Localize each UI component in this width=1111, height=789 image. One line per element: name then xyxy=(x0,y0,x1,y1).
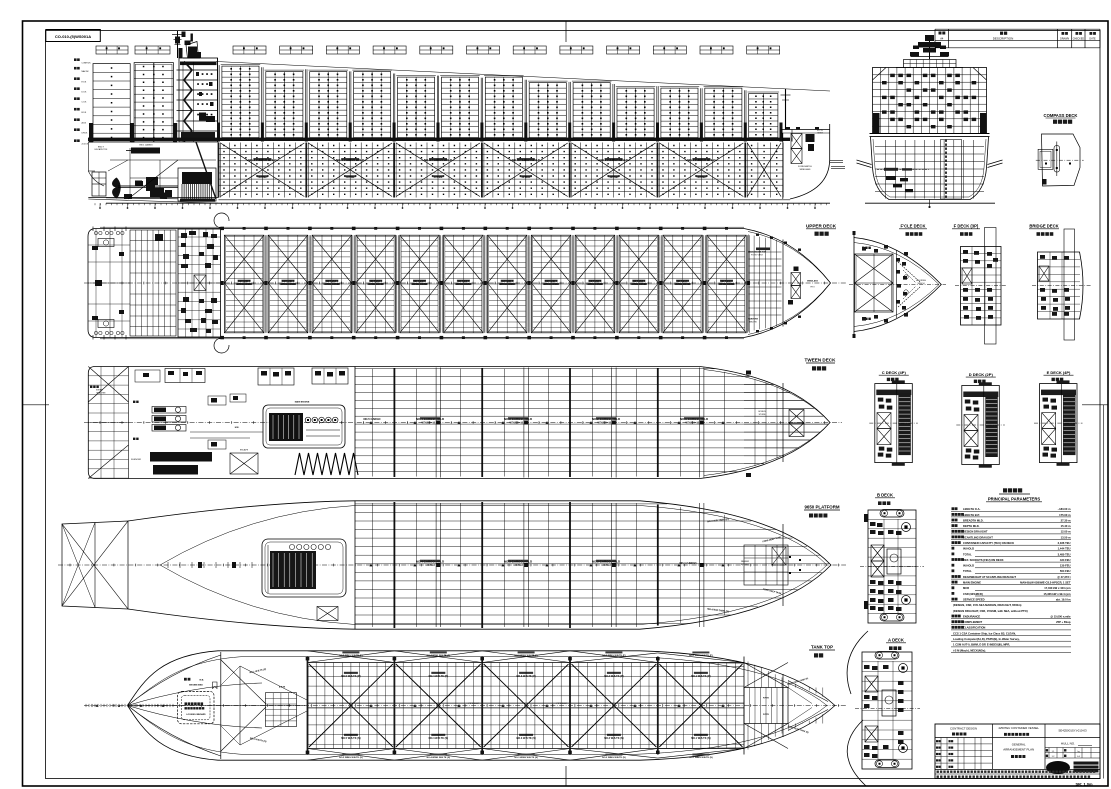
svg-text:DESIGN DRAUGHT: DESIGN DRAUGHT xyxy=(963,530,988,534)
svg-text:LENGTH B.P.: LENGTH B.P. xyxy=(963,513,980,517)
svg-text:NO.5 WING W.B.TK (S): NO.5 WING W.B.TK (S) xyxy=(339,757,363,759)
svg-text:SERVICE SPEED: SERVICE SPEED xyxy=(963,598,985,602)
svg-text:564 FEU: 564 FEU xyxy=(1060,569,1071,573)
svg-text:BRIDGE DECK: BRIDGE DECK xyxy=(1029,223,1058,228)
svg-text:HATCH COVER: HATCH COVER xyxy=(499,283,516,286)
svg-text:MAIN ENGINE: MAIN ENGINE xyxy=(963,581,981,585)
svg-text:40FT/20FT: 40FT/20FT xyxy=(720,280,733,283)
svg-text:FR 8: FR 8 xyxy=(811,287,815,289)
svg-text:ESCAPE: ESCAPE xyxy=(240,449,249,452)
svg-text:25P + 6Sup: 25P + 6Sup xyxy=(1056,620,1071,624)
svg-text:40T/M2 H=10.4M: 40T/M2 H=10.4M xyxy=(421,422,439,424)
svg-text:EMC'Y: EMC'Y xyxy=(98,147,105,149)
svg-text:BELOW: BELOW xyxy=(749,322,756,324)
svg-text:REF. SOCKETS (FEU) ON DECK: REF. SOCKETS (FEU) ON DECK xyxy=(963,558,1004,562)
svg-text:CSR (90%MCR): CSR (90%MCR) xyxy=(963,592,983,596)
svg-text:TOTAL: TOTAL xyxy=(963,569,972,573)
svg-text:F DECK (3P): F DECK (3P) xyxy=(954,223,979,228)
svg-text:A DK: A DK xyxy=(82,122,87,125)
svg-text:DECK HOUSE TOP: DECK HOUSE TOP xyxy=(748,252,767,254)
svg-text:NO.1 CARGO HOLD: NO.1 CARGO HOLD xyxy=(680,417,709,421)
svg-text:40T/M2 H=10.4M: 40T/M2 H=10.4M xyxy=(597,422,615,424)
svg-text:40FT/20FT: 40FT/20FT xyxy=(501,280,514,283)
svg-text:NO.3 CARGO HOLD: NO.3 CARGO HOLD xyxy=(512,158,541,162)
svg-text:1,444 TEU: 1,444 TEU xyxy=(1058,547,1071,551)
svg-text:HATCH COVER: HATCH COVER xyxy=(367,283,384,286)
svg-text:WINCH: WINCH xyxy=(918,283,925,285)
svg-text:438 TEU: 438 TEU xyxy=(425,565,434,567)
svg-text:40FT/20FT: 40FT/20FT xyxy=(238,280,251,283)
svg-text:FO TK VENT: FO TK VENT xyxy=(751,255,764,257)
svg-text:UP.DK: UP.DK xyxy=(82,133,89,135)
svg-text:NO.5 WING W.B.TK (P): NO.5 WING W.B.TK (P) xyxy=(339,655,363,657)
svg-text:HATCH COVER: HATCH COVER xyxy=(411,283,428,286)
svg-text:CO-010-(5)WS001A: CO-010-(5)WS001A xyxy=(55,34,91,39)
svg-text:BOSUN: BOSUN xyxy=(758,411,766,413)
svg-text:HATCH COVER: HATCH COVER xyxy=(455,283,472,286)
svg-text:F.P.TK: F.P.TK xyxy=(763,714,770,716)
svg-text:M.E.: M.E. xyxy=(200,680,205,682)
svg-text:438 TEU: 438 TEU xyxy=(513,565,522,567)
svg-text:40T/M2: 40T/M2 xyxy=(697,176,706,179)
svg-text:C DECK (4P): C DECK (4P) xyxy=(882,370,907,375)
svg-text:NO.3 CARGO HOLD: NO.3 CARGO HOLD xyxy=(504,417,533,421)
svg-text:STEER: STEER xyxy=(96,390,103,392)
svg-text:F.P.TK: F.P.TK xyxy=(763,698,770,700)
svg-text:NO.1 CARGO HOLD: NO.1 CARGO HOLD xyxy=(687,158,716,162)
svg-text:1 CSM AUT-0, BWM, E-DP, E-IN: 1 CSM AUT-0, BWM, E-DP, E-INDEX(III), MP… xyxy=(953,643,1010,647)
svg-text:SR: 1.0m: SR: 1.0m xyxy=(1075,781,1093,786)
svg-text:IN HOLD: IN HOLD xyxy=(963,564,974,568)
svg-text:FORECASTLE: FORECASTLE xyxy=(798,165,812,168)
svg-text:40T/M2: 40T/M2 xyxy=(346,176,355,179)
svg-text:HATCH COVER: HATCH COVER xyxy=(543,283,560,286)
svg-text:TWEEN DECK: TWEEN DECK xyxy=(805,358,837,363)
svg-text:40FT/20FT: 40FT/20FT xyxy=(370,280,383,283)
svg-text:ENGINE BED: ENGINE BED xyxy=(189,684,203,686)
svg-text:UPPER DECK: UPPER DECK xyxy=(806,223,837,228)
svg-text:IN HOLD: IN HOLD xyxy=(963,547,974,551)
svg-text:HATCH COVER: HATCH COVER xyxy=(630,283,647,286)
svg-text:~183.00 m: ~183.00 m xyxy=(1058,507,1072,511)
svg-text:HATCH COVER: HATCH COVER xyxy=(236,283,253,286)
svg-text:A.P.TK: A.P.TK xyxy=(279,686,286,689)
svg-text:40FT/20FT: 40FT/20FT xyxy=(457,280,470,283)
svg-text:40FT/20FT: 40FT/20FT xyxy=(589,280,602,283)
svg-text:40FT/20FT: 40FT/20FT xyxy=(326,280,339,283)
svg-text:ESCAPE TRK: ESCAPE TRK xyxy=(95,148,108,151)
svg-text:GEAR RM: GEAR RM xyxy=(96,391,106,394)
svg-text:NO.1 WING W.B.TK (P): NO.1 WING W.B.TK (P) xyxy=(689,655,713,657)
svg-text:40T/M2: 40T/M2 xyxy=(522,176,531,179)
svg-text:i-S M (Mach), NECK(NOx).: i-S M (Mach), NECK(NOx). xyxy=(953,648,986,652)
svg-text:E DECK (4P): E DECK (4P) xyxy=(1047,370,1071,375)
svg-text:CONTRACT DESIGN: CONTRACT DESIGN xyxy=(950,727,977,731)
svg-text:TOTAL: TOTAL xyxy=(963,552,972,556)
svg-text:40T/M2: 40T/M2 xyxy=(434,176,443,179)
svg-text:B DK: B DK xyxy=(82,112,87,114)
svg-text:SCANTLING DRAUGHT: SCANTLING DRAUGHT xyxy=(963,535,993,539)
svg-text:40FT/20FT: 40FT/20FT xyxy=(545,280,558,283)
svg-text:40T/M2 H=10.4M: 40T/M2 H=10.4M xyxy=(685,422,703,424)
svg-text:40T/M2: 40T/M2 xyxy=(609,176,618,179)
svg-text:SILENCER: SILENCER xyxy=(131,459,142,461)
svg-text:40T/M2: 40T/M2 xyxy=(258,176,267,179)
svg-text:9650 PLATFORM: 9650 PLATFORM xyxy=(804,505,839,510)
svg-text:LENGTH O.A.: LENGTH O.A. xyxy=(963,507,981,511)
svg-text:MOORING: MOORING xyxy=(916,280,926,282)
svg-text:WINDLASS: WINDLASS xyxy=(807,280,818,283)
svg-text:ENG. CASING: ENG. CASING xyxy=(139,144,153,147)
svg-text:NAV.DK: NAV.DK xyxy=(82,70,90,73)
svg-text:COMP.DK: COMP.DK xyxy=(82,63,92,65)
svg-text:27.30 m: 27.30 m xyxy=(1061,518,1071,522)
svg-text:GENERAL: GENERAL xyxy=(1012,743,1026,747)
svg-text:15.40 m: 15.40 m xyxy=(1061,524,1071,528)
svg-text:NO.5 CARGO: NO.5 CARGO xyxy=(363,417,380,421)
svg-text:NO.5 CARGO HOLD: NO.5 CARGO HOLD xyxy=(336,158,365,162)
svg-text:VENT: VENT xyxy=(817,133,823,135)
svg-text:ENDURANCE: ENDURANCE xyxy=(963,614,980,618)
svg-text:NO.4 CARGO HOLD: NO.4 CARGO HOLD xyxy=(416,417,445,421)
svg-text:40FT/20FT: 40FT/20FT xyxy=(282,280,295,283)
svg-text:40FT/20FT: 40FT/20FT xyxy=(413,280,426,283)
svg-text:STORE: STORE xyxy=(759,414,767,416)
svg-text:A DECK: A DECK xyxy=(888,637,904,642)
svg-text:REEFER: REEFER xyxy=(741,561,750,563)
svg-text:HULL NO.: HULL NO. xyxy=(1061,742,1075,746)
svg-text:F'CLE DECK: F'CLE DECK xyxy=(901,223,926,228)
svg-text:PRINCIPAL PARAMETERS: PRINCIPAL PARAMETERS xyxy=(988,496,1041,501)
svg-text:(DESIGN, CSR, 15% SEA MARGIN,: (DESIGN, CSR, 15% SEA MARGIN, DRAUGHT, 6… xyxy=(953,603,1022,607)
svg-text:438 TEU: 438 TEU xyxy=(601,565,610,567)
svg-text:HATCH COVER: HATCH COVER xyxy=(323,283,340,286)
svg-text:NO.6 CARGO HOLD: NO.6 CARGO HOLD xyxy=(248,158,277,162)
svg-text:B DECK: B DECK xyxy=(877,492,893,497)
svg-text:13.50 m: 13.50 m xyxy=(1061,535,1071,539)
svg-text:@ 47,373 t: @ 47,373 t xyxy=(1057,575,1070,579)
svg-text:SOCKET: SOCKET xyxy=(741,564,750,566)
svg-text:12.00 m: 12.00 m xyxy=(1061,530,1071,534)
svg-text:NO.3 CARGO HOLD: NO.3 CARGO HOLD xyxy=(504,559,533,563)
svg-text:CLASSIFICATION: CLASSIFICATION xyxy=(963,626,985,630)
svg-text:A4: A4 xyxy=(940,36,944,40)
svg-text:NO.4 CARGO HOLD: NO.4 CARGO HOLD xyxy=(416,559,445,563)
svg-text:NO.4 WING W.B.TK (P): NO.4 WING W.B.TK (P) xyxy=(427,654,451,657)
svg-text:NO.2 WING W.B.TK (P): NO.2 WING W.B.TK (P) xyxy=(602,655,626,657)
svg-text:40FT/20FT: 40FT/20FT xyxy=(633,280,646,283)
svg-text:NO.1 WING W.B.TK (S): NO.1 WING W.B.TK (S) xyxy=(689,757,713,759)
svg-text:2nd DK: 2nd DK xyxy=(82,144,89,146)
svg-text:NO.1 CARGO: NO.1 CARGO xyxy=(679,561,696,565)
svg-text:CHECKED: CHECKED xyxy=(1073,39,1085,41)
svg-text:PAINT RM: PAINT RM xyxy=(748,318,758,321)
svg-text:HATCH COVER: HATCH COVER xyxy=(587,283,604,286)
svg-text:40T/M2 H=10.4M: 40T/M2 H=10.4M xyxy=(509,422,527,424)
svg-text:4250TEU CONTAINER VESSEL: 4250TEU CONTAINER VESSEL xyxy=(998,726,1039,730)
svg-text:D DK: D DK xyxy=(82,92,87,94)
svg-text:NO.3 WING W.B.TK (P): NO.3 WING W.B.TK (P) xyxy=(514,655,538,657)
svg-text:DESCRIPTION: DESCRIPTION xyxy=(993,37,1014,41)
svg-text:C DK: C DK xyxy=(82,102,87,104)
svg-text:NO.3 WING W.B.TK (S): NO.3 WING W.B.TK (S) xyxy=(514,757,538,759)
svg-text:MAN-B&W 6S60ME-C8.2-HPSCR, 1 S: MAN-B&W 6S60ME-C8.2-HPSCR, 1 SET xyxy=(1020,581,1071,585)
svg-text:15,336 kW x 99.4 rpm: 15,336 kW x 99.4 rpm xyxy=(1043,592,1071,596)
svg-text:(DESIGN DRAUGHT, CSR, 15%SM, w: (DESIGN DRAUGHT, CSR, 15%SM, with SBA, w… xyxy=(953,609,1028,613)
svg-text:abt. 19.0 kn: abt. 19.0 kn xyxy=(1056,598,1071,602)
svg-text:130 FEU: 130 FEU xyxy=(1060,564,1071,568)
svg-text:CCS 1 CSA Container Ship, Ic: CCS 1 CSA Container Ship, Ice Class B3, … xyxy=(953,631,1016,635)
svg-text:NO.2 WING W.B.TK (S): NO.2 WING W.B.TK (S) xyxy=(602,757,626,759)
svg-text:kg: kg xyxy=(1077,751,1079,753)
svg-text:17,040 kW x 103 rpm: 17,040 kW x 103 rpm xyxy=(1044,586,1071,590)
svg-text:COMPLEMENT: COMPLEMENT xyxy=(963,620,982,624)
svg-text:CONTAINER CAPACITY (TEU) ON D: CONTAINER CAPACITY (TEU) ON DECK xyxy=(963,541,1014,545)
svg-text:NO.2 CARGO HOLD: NO.2 CARGO HOLD xyxy=(592,559,621,563)
svg-text:COMPASS DECK: COMPASS DECK xyxy=(1044,113,1078,118)
svg-text:2,036 TEU: 2,036 TEU xyxy=(1058,541,1071,545)
svg-text:HATCH COVER: HATCH COVER xyxy=(718,283,735,286)
svg-text:WINDLASS: WINDLASS xyxy=(800,168,811,171)
svg-text:D DECK (2P): D DECK (2P) xyxy=(969,372,994,377)
svg-text:M.E.: M.E. xyxy=(235,427,240,429)
svg-text:ARRANGEMENT PLAN: ARRANGEMENT PLAN xyxy=(1003,748,1034,752)
svg-text:HATCH COVER: HATCH COVER xyxy=(280,283,297,286)
svg-text:NO.2 CARGO HOLD: NO.2 CARGO HOLD xyxy=(592,417,621,421)
svg-text:DATE: DATE xyxy=(1089,38,1096,41)
svg-text:PIPE DUCT: PIPE DUCT xyxy=(557,703,568,705)
svg-text:LOOKING INBOARD: LOOKING INBOARD xyxy=(186,713,206,716)
svg-text:MCR: MCR xyxy=(963,586,969,590)
svg-text:@ 15,000 n.mile: @ 15,000 n.mile xyxy=(1050,614,1071,618)
svg-text:DRAWN: DRAWN xyxy=(1060,38,1069,41)
svg-text:40FT/20FT: 40FT/20FT xyxy=(676,280,689,283)
svg-text:3,480 TEU: 3,480 TEU xyxy=(1058,552,1071,556)
svg-text:434 FEU: 434 FEU xyxy=(1060,558,1071,562)
svg-text:DEADWEIGHT AT SCANTLING DRAUGH: DEADWEIGHT AT SCANTLING DRAUGHT xyxy=(963,575,1016,579)
svg-text:E DK: E DK xyxy=(82,82,87,84)
svg-text:PIPE DUCT: PIPE DUCT xyxy=(469,703,480,705)
svg-text:Loading Computer(S,I,D), PSPC(: Loading Computer(S,I,D), PSPC(B), In-Wat… xyxy=(953,637,1020,641)
svg-text:NO.4 CARGO HOLD: NO.4 CARGO HOLD xyxy=(424,158,453,162)
svg-text:NO.2 CARGO HOLD: NO.2 CARGO HOLD xyxy=(599,158,628,162)
svg-text:SE4250G(SY)-010-03: SE4250G(SY)-010-03 xyxy=(1058,729,1087,733)
svg-text:HATCH COVER: HATCH COVER xyxy=(674,283,691,286)
svg-text:BREADTH MLD.: BREADTH MLD. xyxy=(963,518,984,522)
svg-text:DEPTH MLD.: DEPTH MLD. xyxy=(963,524,980,528)
svg-text:NO.4 WING W.B.TK (S): NO.4 WING W.B.TK (S) xyxy=(427,756,451,759)
svg-text:TANK TOP: TANK TOP xyxy=(811,645,833,650)
svg-text:175.00 m: 175.00 m xyxy=(1059,513,1071,517)
svg-text:MAIN ENGINE: MAIN ENGINE xyxy=(295,401,310,404)
